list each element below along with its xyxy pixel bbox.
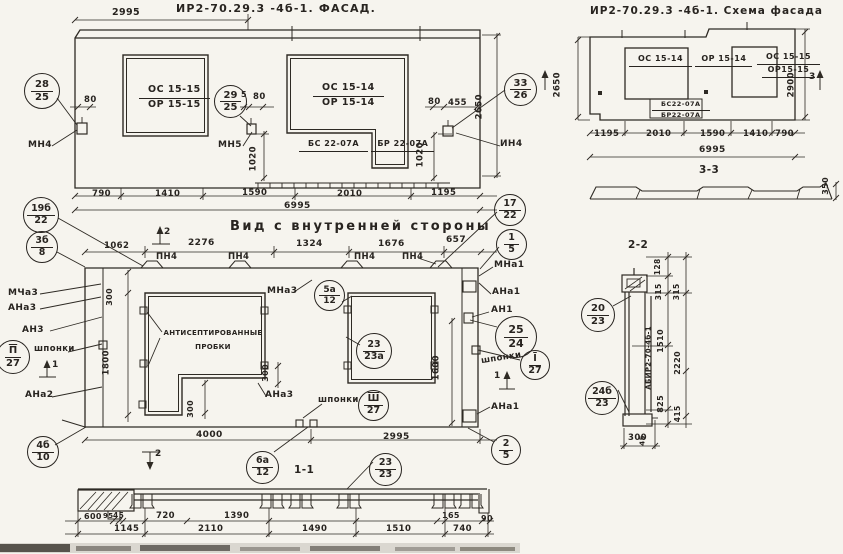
facade-title: ИР2-70.29.3 -4б-1. ФАСАД. (176, 3, 376, 15)
scheme-dowel-dots (598, 90, 708, 95)
callout-III-27: Ш27 (358, 390, 389, 421)
callout-17-22: 1722 (494, 194, 526, 226)
section-2-marker-top: 2 (164, 228, 171, 238)
dim-1324: 1324 (296, 240, 323, 250)
label-an1: АН1 (491, 306, 513, 316)
section-2-marker-bottom: 2 (155, 450, 162, 460)
dim-1410-scheme: 1410 (743, 130, 768, 139)
dim-1590-scheme: 1590 (700, 130, 725, 139)
facade-dim-lines (70, 14, 501, 210)
inner-dim-ticks (82, 249, 484, 443)
dim-415: 415 (674, 405, 682, 422)
dim-1410: 1410 (155, 190, 180, 199)
callout-20-23: 2023 (581, 298, 615, 332)
scheme-title: ИР2-70.29.3 -4б-1. Схема фасада (590, 6, 823, 18)
label-pn4-1: ПН4 (156, 253, 177, 262)
dim-45: 45 (113, 512, 124, 520)
label-ana1-top: АНа1 (492, 288, 520, 298)
dim-2995-inner: 2995 (383, 433, 410, 443)
callout-1-5: 15 (496, 229, 527, 260)
inner-view-title: Вид с внутренней стороны (230, 220, 491, 234)
section11-profile (78, 489, 489, 519)
dim-165: 165 (442, 512, 460, 521)
scan-artifact-dash-2 (76, 546, 131, 551)
dim-300-bottom: 300 (187, 400, 196, 418)
dim-350: 350 (822, 177, 831, 195)
callout-23-23: 2323 (369, 453, 402, 486)
label-ana3-left: АНа3 (8, 304, 36, 314)
callout-29-25: 2925 (214, 85, 247, 118)
dim-600: 600 (84, 513, 102, 522)
dim-790-scheme: 790 (775, 130, 794, 139)
window-label-bs22-07a: БС 22-07А БР 22-07А (299, 139, 434, 152)
label-an3: АН3 (22, 326, 44, 336)
window-label-os15-15: ОС 15-15 ОР 15-15 (139, 84, 210, 112)
dim-80-right: 80 (428, 98, 441, 107)
label-mna1: МНа1 (494, 261, 524, 271)
anchor-label-mn5: МН5 (218, 141, 242, 151)
label-ana1-bottom: АНа1 (491, 403, 519, 413)
drawing-linework (0, 0, 843, 554)
callout-4b-10: 4б10 (27, 436, 59, 468)
label-shponki-mid: шпонки (318, 396, 359, 405)
dim-6995-scheme: 6995 (699, 146, 726, 156)
dim-4000: 4000 (196, 431, 223, 441)
dim-2010: 2010 (337, 190, 362, 199)
callout-I-27: I27 (520, 350, 550, 380)
dim-2650-scheme: 2650 (554, 72, 563, 97)
dim-1510-sec: 1510 (657, 329, 666, 353)
dim-300-sec: 300 (628, 434, 647, 443)
dim-300-top: 300 (106, 288, 115, 306)
label-ana2: АНа2 (25, 391, 53, 401)
inner-edge-items (99, 281, 480, 427)
profile-3-3 (590, 181, 839, 201)
dim-720: 720 (156, 512, 175, 521)
label-mna3: МНа3 (267, 287, 297, 297)
callout-2-5: 25 (491, 435, 521, 465)
label-pn4-3: ПН4 (354, 253, 375, 262)
dim-1800: 1800 (103, 350, 112, 375)
dim-1510: 1510 (386, 525, 411, 534)
inner-section-markers (39, 226, 515, 470)
inner-leader-lines (40, 212, 520, 489)
section-1-marker-right: 1 (494, 372, 501, 382)
label-ana3-mid: АНа3 (265, 391, 293, 401)
dim-80-mid: 80 (253, 93, 266, 102)
scan-artifact-dash-5 (310, 546, 380, 551)
dim-657: 657 (446, 236, 466, 246)
scan-artifact-dash-6 (395, 547, 455, 551)
callout-33-26: 3326 (504, 73, 537, 106)
section-2-2-label: 2-2 (628, 240, 648, 252)
dim-2900: 2900 (788, 72, 797, 97)
dim-315-a: 315 (655, 283, 663, 300)
label-pn4-4: ПН4 (402, 253, 423, 262)
callout-23-23a: 2323а (356, 333, 392, 369)
dim-90: 90 (481, 515, 493, 524)
scheme-window-label-bs22-07a: БС22-07А БР22-07А (652, 100, 710, 120)
window-label-os15-14: ОС 15-14 ОР 15-14 (313, 82, 384, 110)
dim-455: 455 (448, 99, 467, 108)
dim-1195-scheme: 1195 (594, 130, 619, 139)
section-3-marker-label: 3 (809, 73, 816, 83)
dim-1490: 1490 (302, 525, 327, 534)
dim-2650-facade: 2650 (476, 94, 485, 119)
dim-825: 825 (657, 395, 666, 413)
facade-dim-ticks (72, 17, 500, 213)
callout-24b-23: 24б23 (585, 381, 619, 415)
dim-2220: 2220 (674, 351, 683, 375)
section-1-marker-left: 1 (52, 361, 59, 371)
anchor-label-mn4: МН4 (28, 141, 52, 151)
dim-2110: 2110 (198, 525, 223, 534)
dim-1195: 1195 (431, 189, 456, 198)
dim-1600: 1600 (433, 355, 442, 380)
dim-315-b: 315 (673, 283, 681, 300)
anchor-label-in4: ИН4 (500, 140, 523, 150)
dim-2276: 2276 (188, 239, 215, 249)
dim-1020-mid: 1020 (250, 146, 259, 171)
dim-1676: 1676 (378, 240, 405, 250)
label-pn4-2: ПН4 (228, 253, 249, 262)
callout-28-25: 2825 (24, 73, 60, 109)
dim-95: 95 (103, 513, 114, 521)
scheme-dim-ticks (575, 29, 808, 160)
dim-300-mid: 300 (262, 364, 271, 382)
callout-19b-22: 19б22 (23, 197, 59, 233)
dim-2995: 2995 (112, 8, 140, 18)
callout-5a-12: 5а12 (314, 280, 345, 311)
section-1-1-label: 1-1 (294, 465, 314, 477)
dim-128: 128 (654, 258, 662, 275)
label-mcha3: МЧа3 (8, 289, 38, 299)
scan-artifact-dash-7 (460, 547, 515, 551)
dim-1590: 1590 (242, 189, 267, 198)
dim-80-left: 80 (84, 96, 97, 105)
panel-mark-stamp: АБИР2-70-4б-1 (645, 326, 653, 390)
scan-artifact-dash-4 (240, 547, 300, 551)
dim-740: 740 (453, 525, 472, 534)
facade-section-arrow (542, 70, 549, 78)
dim-1145: 1145 (114, 525, 139, 534)
callout-3b-8: 3б8 (26, 231, 58, 263)
dim-6995-facade: 6995 (284, 202, 311, 212)
dim-1062: 1062 (104, 242, 129, 251)
scanned-blueprint-page: { "drawing": { "background": "#f6f4ee", … (0, 0, 843, 554)
dim-790: 790 (92, 190, 111, 199)
dim-2010-scheme: 2010 (646, 130, 671, 139)
scan-artifact-dash-1 (0, 544, 70, 552)
label-shponki-left: шпонки (34, 345, 75, 354)
section-3-3-label: 3-3 (699, 165, 719, 177)
scan-artifact-dash-3 (140, 545, 230, 551)
callout-6a-12: 6а12 (246, 451, 279, 484)
antiseptic-plugs-note: АНТИСЕПТИРОВАННЫЕ ПРОБКИ (158, 326, 268, 354)
dim-1390: 1390 (224, 512, 249, 521)
